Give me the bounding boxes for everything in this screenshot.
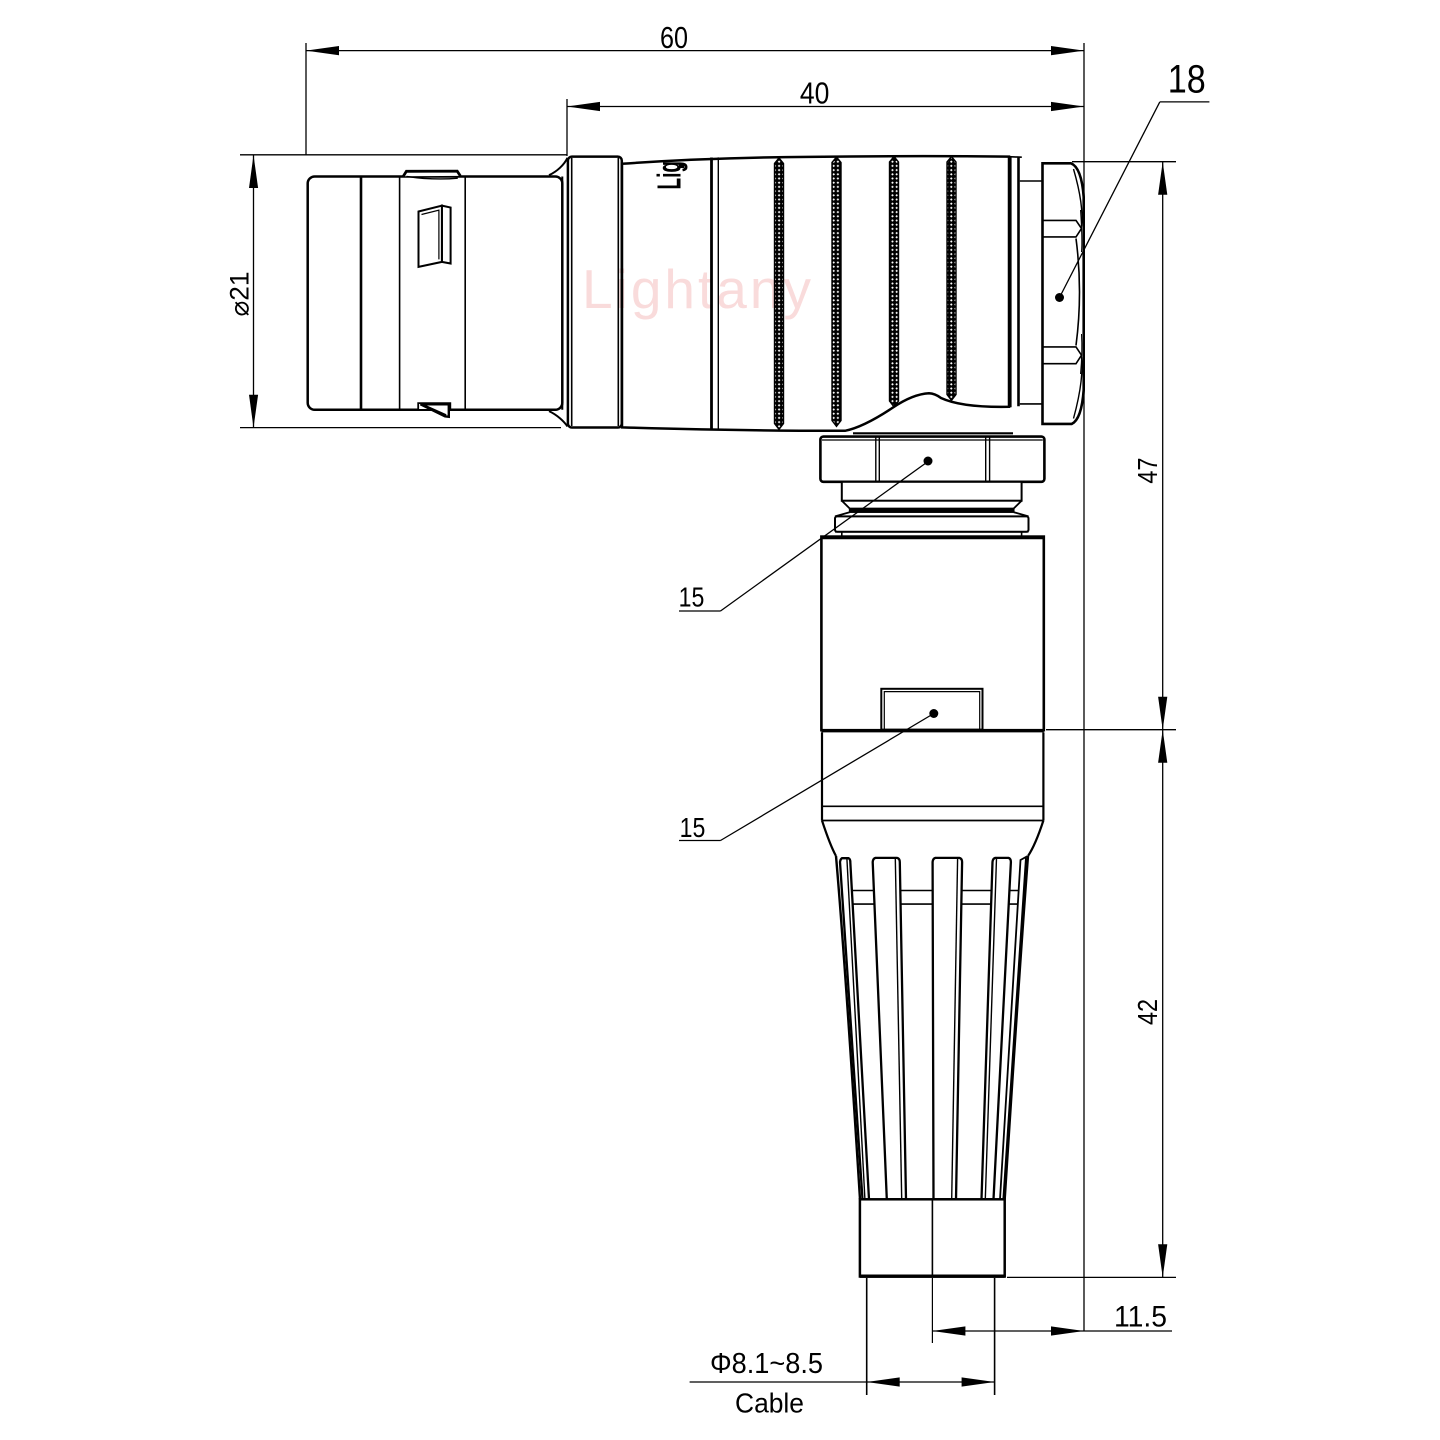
- svg-text:40: 40: [800, 76, 830, 111]
- svg-text:⌀21: ⌀21: [225, 272, 255, 317]
- svg-text:Φ8.1~8.5: Φ8.1~8.5: [710, 1348, 823, 1380]
- svg-text:11.5: 11.5: [1114, 1301, 1167, 1334]
- svg-text:42: 42: [1132, 999, 1163, 1025]
- svg-text:47: 47: [1132, 458, 1163, 484]
- svg-text:60: 60: [660, 20, 688, 55]
- svg-text:15: 15: [680, 812, 706, 843]
- svg-text:18: 18: [1168, 58, 1206, 102]
- svg-text:Cable: Cable: [735, 1388, 804, 1419]
- svg-text:Lightany: Lightany: [582, 258, 814, 320]
- svg-text:15: 15: [679, 582, 705, 613]
